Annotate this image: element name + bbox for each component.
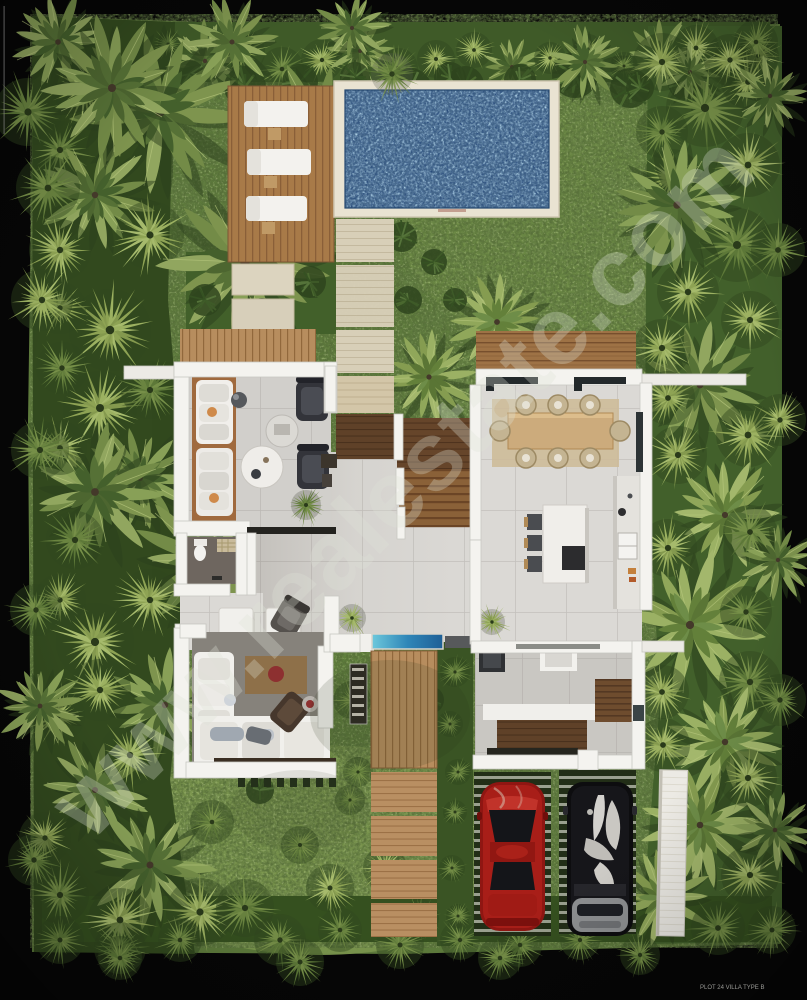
svg-text:PLOT 24 VILLA TYPE B: PLOT 24 VILLA TYPE B	[700, 985, 764, 991]
